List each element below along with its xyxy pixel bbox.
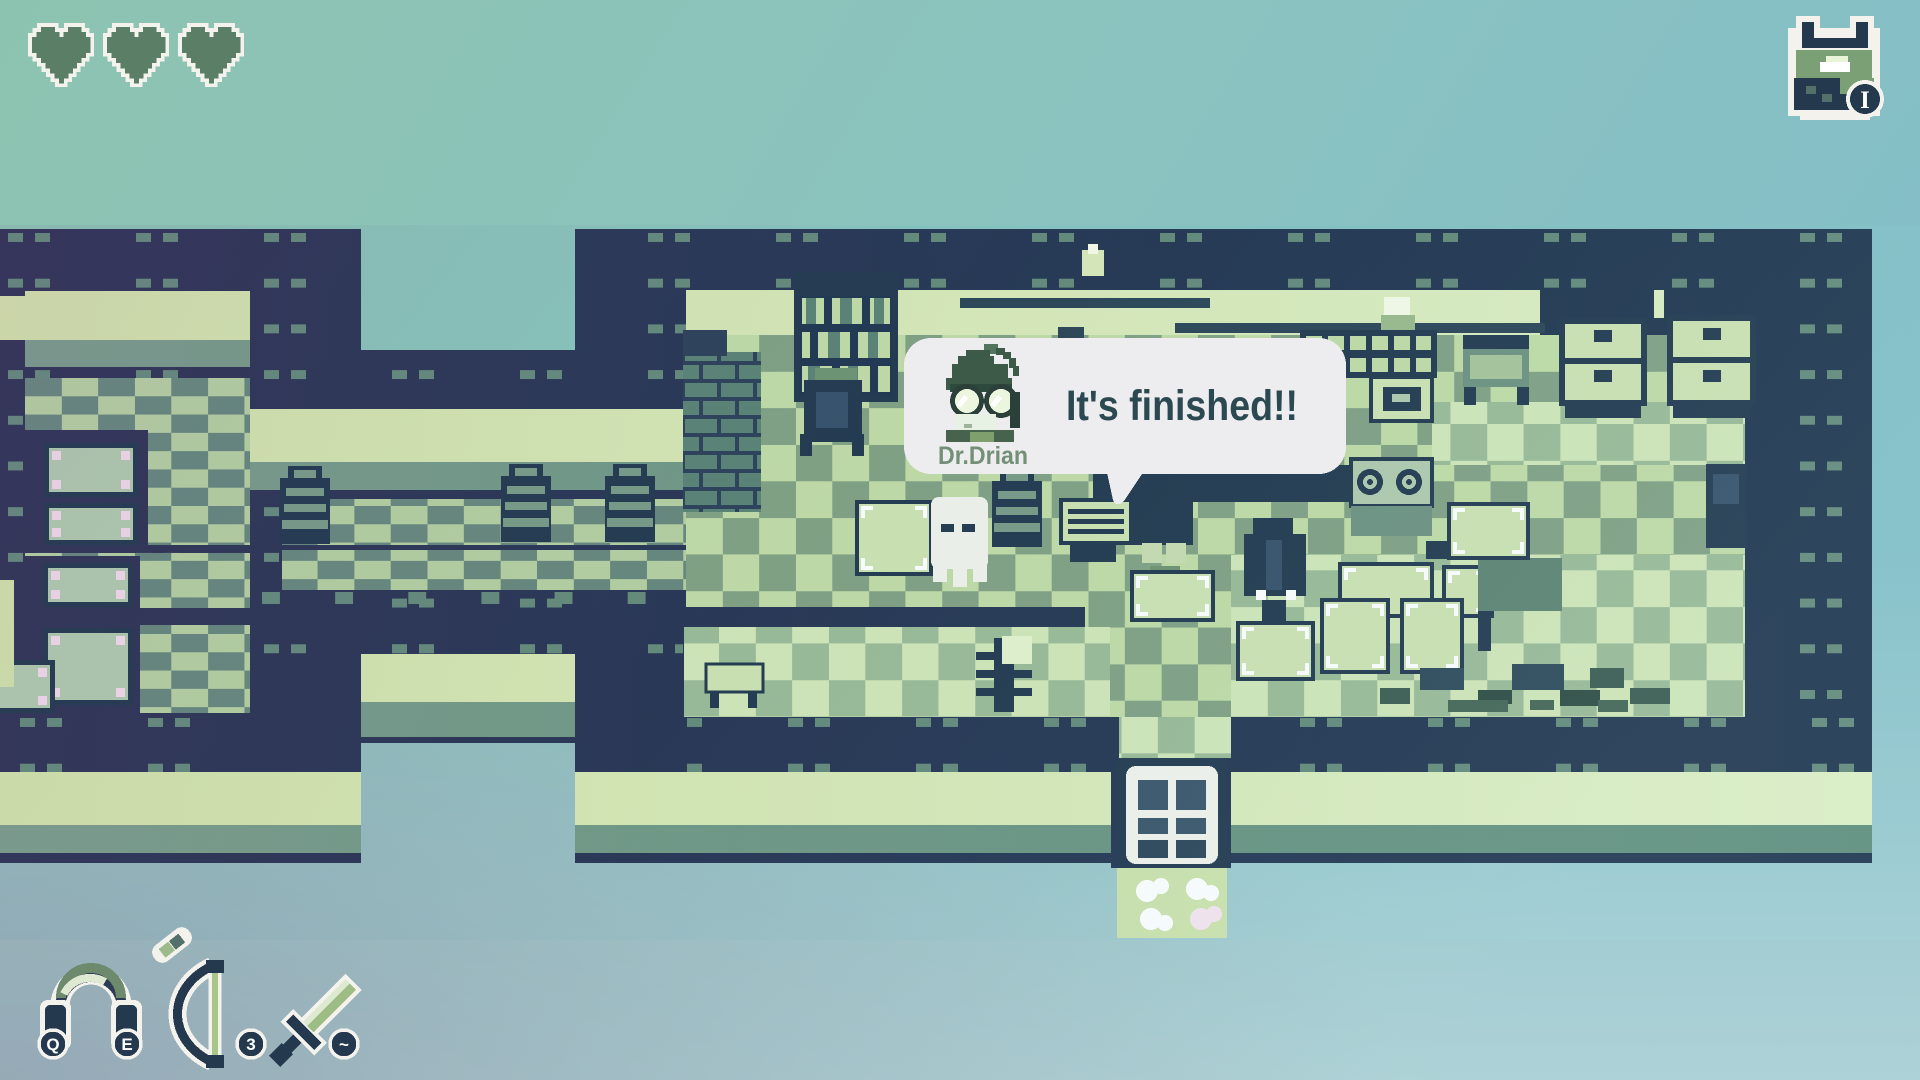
svg-text:I: I bbox=[1860, 87, 1870, 114]
svg-text:Dr.Drian: Dr.Drian bbox=[938, 442, 1028, 470]
svg-text:~: ~ bbox=[339, 1035, 349, 1054]
svg-text:It's finished!!: It's finished!! bbox=[1066, 382, 1298, 430]
svg-text:Q: Q bbox=[46, 1035, 59, 1054]
svg-text:E: E bbox=[121, 1035, 132, 1054]
svg-text:3: 3 bbox=[246, 1035, 255, 1054]
